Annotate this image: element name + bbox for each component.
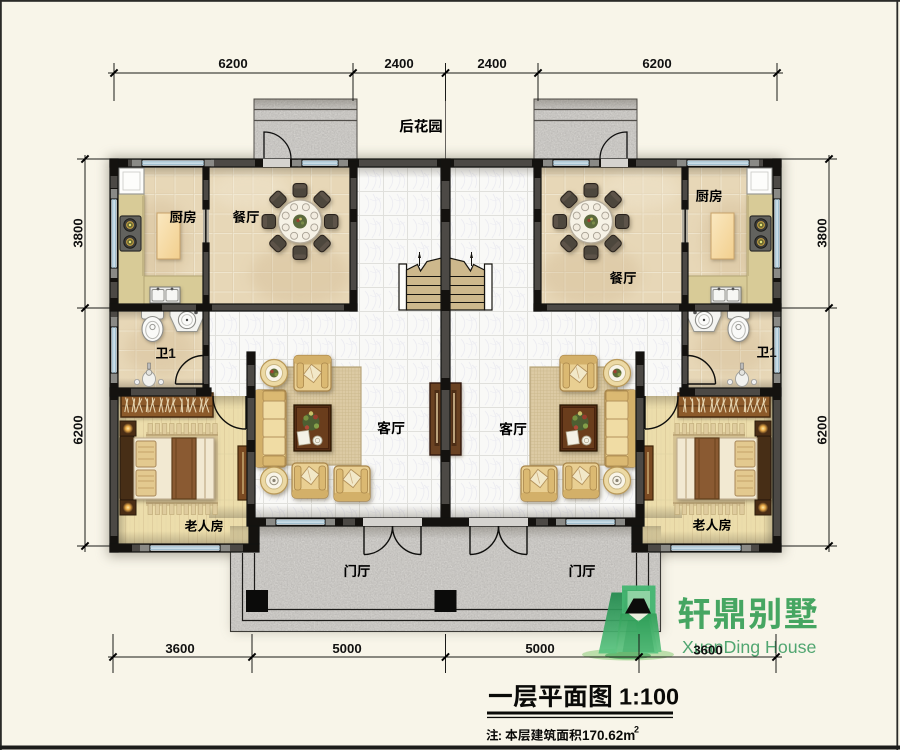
svg-text:6200: 6200 bbox=[642, 56, 671, 71]
svg-text:1:100: 1:100 bbox=[619, 684, 679, 710]
svg-text:6200: 6200 bbox=[815, 415, 830, 444]
svg-text:170.62m: 170.62m bbox=[582, 728, 635, 743]
svg-text:3600: 3600 bbox=[693, 643, 722, 658]
svg-text::: : bbox=[498, 729, 502, 743]
svg-text:2400: 2400 bbox=[384, 56, 413, 71]
svg-text:5000: 5000 bbox=[525, 641, 554, 656]
svg-text:1: 1 bbox=[168, 346, 176, 361]
svg-text:2: 2 bbox=[634, 725, 639, 735]
svg-text:3800: 3800 bbox=[71, 218, 86, 247]
svg-text:5000: 5000 bbox=[332, 641, 361, 656]
svg-text:3800: 3800 bbox=[815, 218, 830, 247]
svg-text:6200: 6200 bbox=[71, 415, 86, 444]
svg-text:2400: 2400 bbox=[477, 56, 506, 71]
svg-text:1: 1 bbox=[769, 345, 777, 360]
svg-text:6200: 6200 bbox=[218, 56, 247, 71]
svg-text:3600: 3600 bbox=[165, 641, 194, 656]
